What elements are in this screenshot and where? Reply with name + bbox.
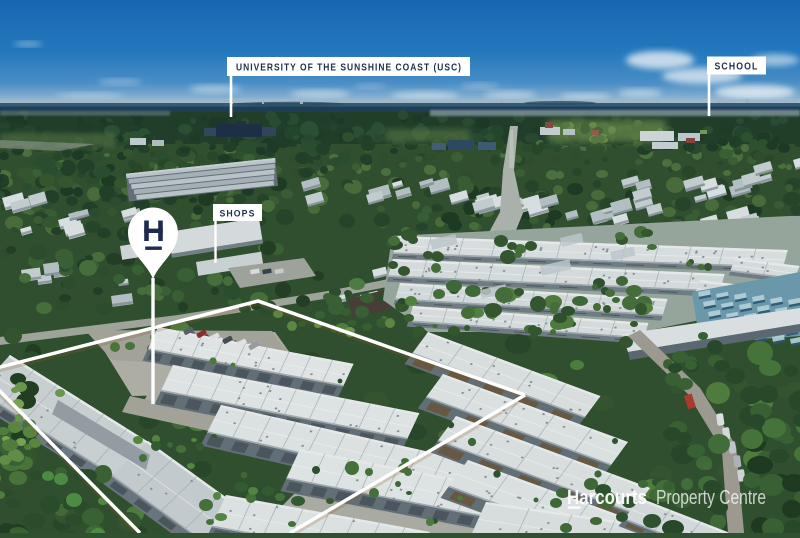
svg-text:Property Centre: Property Centre xyxy=(656,486,766,509)
svg-text:Harcourts: Harcourts xyxy=(567,486,647,509)
svg-text:SCHOOL: SCHOOL xyxy=(715,62,759,73)
svg-text:SHOPS: SHOPS xyxy=(220,209,256,220)
svg-text:UNIVERSITY OF THE SUNSHINE COA: UNIVERSITY OF THE SUNSHINE COAST (USC) xyxy=(236,63,462,74)
